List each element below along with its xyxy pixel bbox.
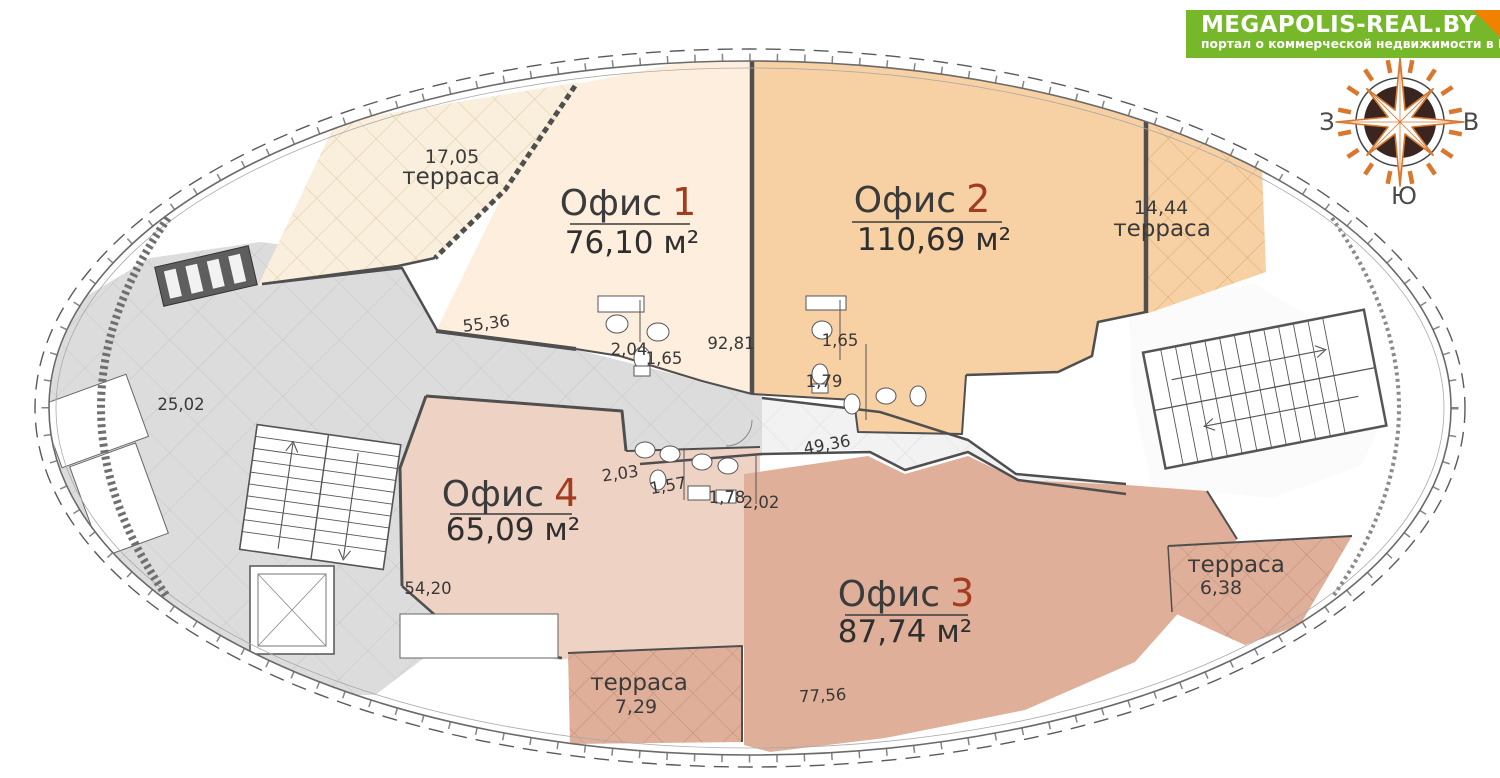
office4-storage-room — [400, 614, 558, 658]
dim-lobby: 25,02 — [157, 395, 204, 414]
office-1-number: 1 — [672, 180, 696, 224]
elevator-shaft — [250, 566, 334, 654]
terrace-14-label: терраса — [1113, 216, 1211, 242]
office-4-number: 4 — [554, 471, 578, 515]
office-2-area: 110,69 м² — [857, 222, 1011, 258]
terrace-17-label: терраса — [402, 164, 500, 190]
dim-wc1-a: 2,04 — [611, 340, 648, 359]
terrace-6-area: 6,38 — [1200, 577, 1242, 599]
dim-wc3-d: 2,02 — [743, 493, 780, 512]
logo-title: MEGAPOLIS-REAL.BY — [1186, 10, 1500, 38]
office-1-title: Офис1 — [560, 180, 697, 224]
dim-wc1-b: 1,65 — [646, 349, 683, 368]
staircase-left — [240, 425, 401, 570]
office-2-number: 2 — [966, 177, 990, 221]
compass-west-label: З — [1319, 108, 1334, 136]
office-3-area: 87,74 м² — [838, 614, 972, 650]
page: Офис1 76,10 м² Офис2 110,69 м² Офис3 87,… — [0, 0, 1500, 778]
office-4-title: Офис4 — [442, 471, 579, 515]
logo-banner[interactable]: MEGAPOLIS-REAL.BY портал о коммерческой … — [1186, 10, 1500, 58]
office-3-region — [744, 456, 1237, 752]
compass-cross-lines — [1336, 58, 1464, 186]
office-2-title: Офис2 — [854, 177, 991, 221]
logo-subtitle: портал о коммерческой недвижимости в Бел… — [1186, 37, 1500, 51]
terrace-7-area: 7,29 — [615, 696, 657, 718]
compass-east-label: В — [1463, 108, 1479, 136]
dim-o2-inner: 92,81 — [707, 334, 754, 353]
office-3-title: Офис3 — [838, 571, 975, 615]
floor-plan: Офис1 76,10 м² Офис2 110,69 м² Офис3 87,… — [0, 0, 1500, 778]
office-4-area: 65,09 м² — [446, 512, 580, 548]
terrace-7-label: терраса — [590, 670, 688, 696]
office-3-number: 3 — [950, 571, 974, 615]
compass-south-label: Ю — [1391, 182, 1417, 210]
compass-rose: З В Ю — [1319, 58, 1479, 210]
dim-o3-inner: 77,56 — [799, 685, 847, 706]
dim-wc3-c: 1,78 — [709, 488, 746, 507]
office-1-area: 76,10 м² — [565, 225, 699, 261]
dim-o4-inner: 54,20 — [404, 579, 451, 598]
terrace-6-label: терраса — [1187, 552, 1285, 578]
dim-wc2-a: 1,65 — [822, 331, 859, 350]
dim-wc2-b: 1,79 — [806, 372, 843, 391]
